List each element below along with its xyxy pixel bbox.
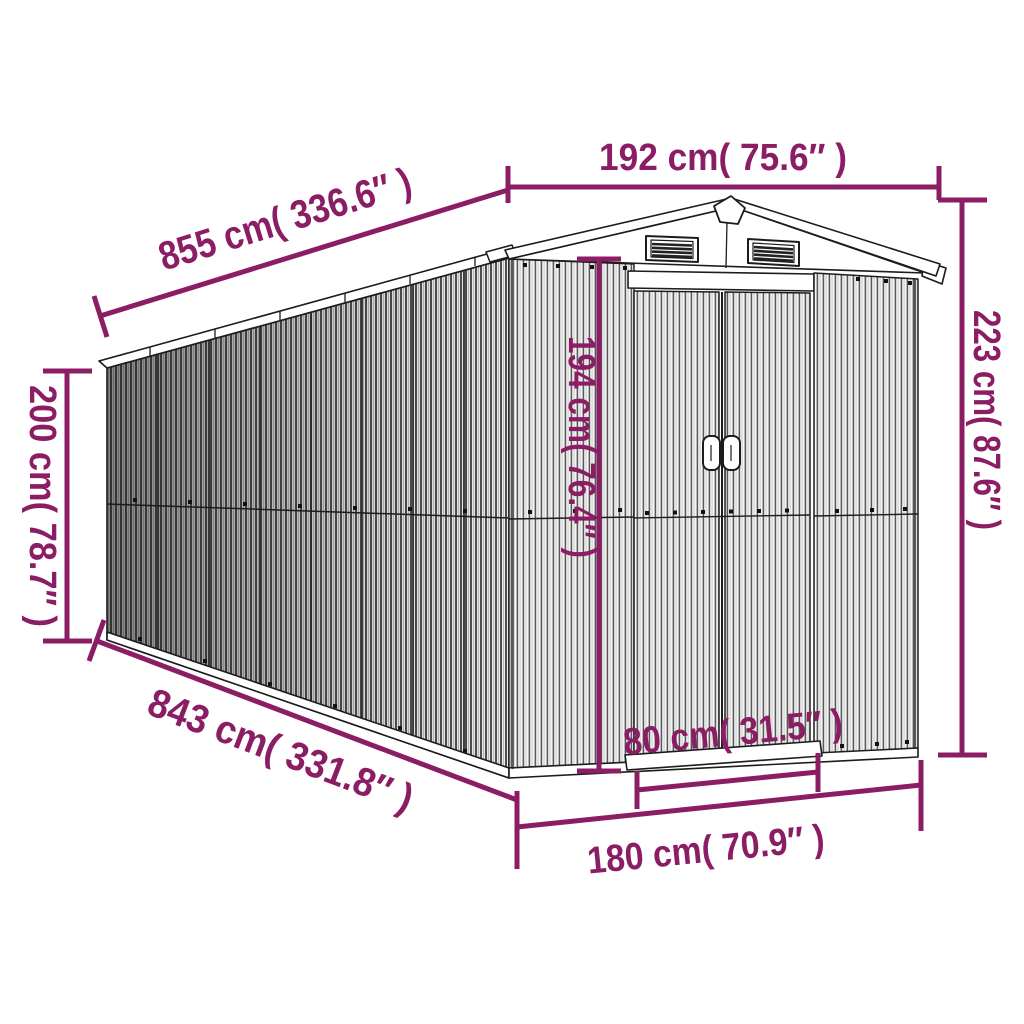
shed-diagram-svg: 855 cm( 336.6″ ) 192 cm( 75.6″ ) 200 cm(… — [0, 0, 1024, 1024]
dim-line — [517, 785, 921, 827]
gable-vent-left — [646, 236, 698, 262]
dim-label-rear-wall-height: 200 cm( 78.7″ ) — [21, 385, 63, 627]
dim-label-door-height: 194 cm( 76.4″ ) — [560, 336, 602, 558]
gable-vent-right — [748, 239, 799, 266]
front-right-panel — [814, 273, 918, 755]
dim-label-total-height: 223 cm( 87.6″ ) — [965, 310, 1007, 530]
dim-label-front-width-base: 180 cm( 70.9″ ) — [585, 818, 826, 883]
dim-front-width-base: 180 cm( 70.9″ ) — [517, 760, 921, 883]
dim-total-height: 223 cm( 87.6″ ) — [938, 200, 1007, 755]
dim-label-front-width-top: 192 cm( 75.6″ ) — [599, 137, 847, 179]
dim-front-width-top: 192 cm( 75.6″ ) — [508, 137, 939, 203]
shed-doors — [634, 291, 810, 759]
product-dimension-diagram: 855 cm( 336.6″ ) 192 cm( 75.6″ ) 200 cm(… — [0, 0, 1024, 1024]
door-right — [725, 292, 810, 752]
dim-rear-wall-height: 200 cm( 78.7″ ) — [21, 371, 92, 641]
dim-line — [637, 772, 818, 790]
door-left — [634, 291, 719, 759]
